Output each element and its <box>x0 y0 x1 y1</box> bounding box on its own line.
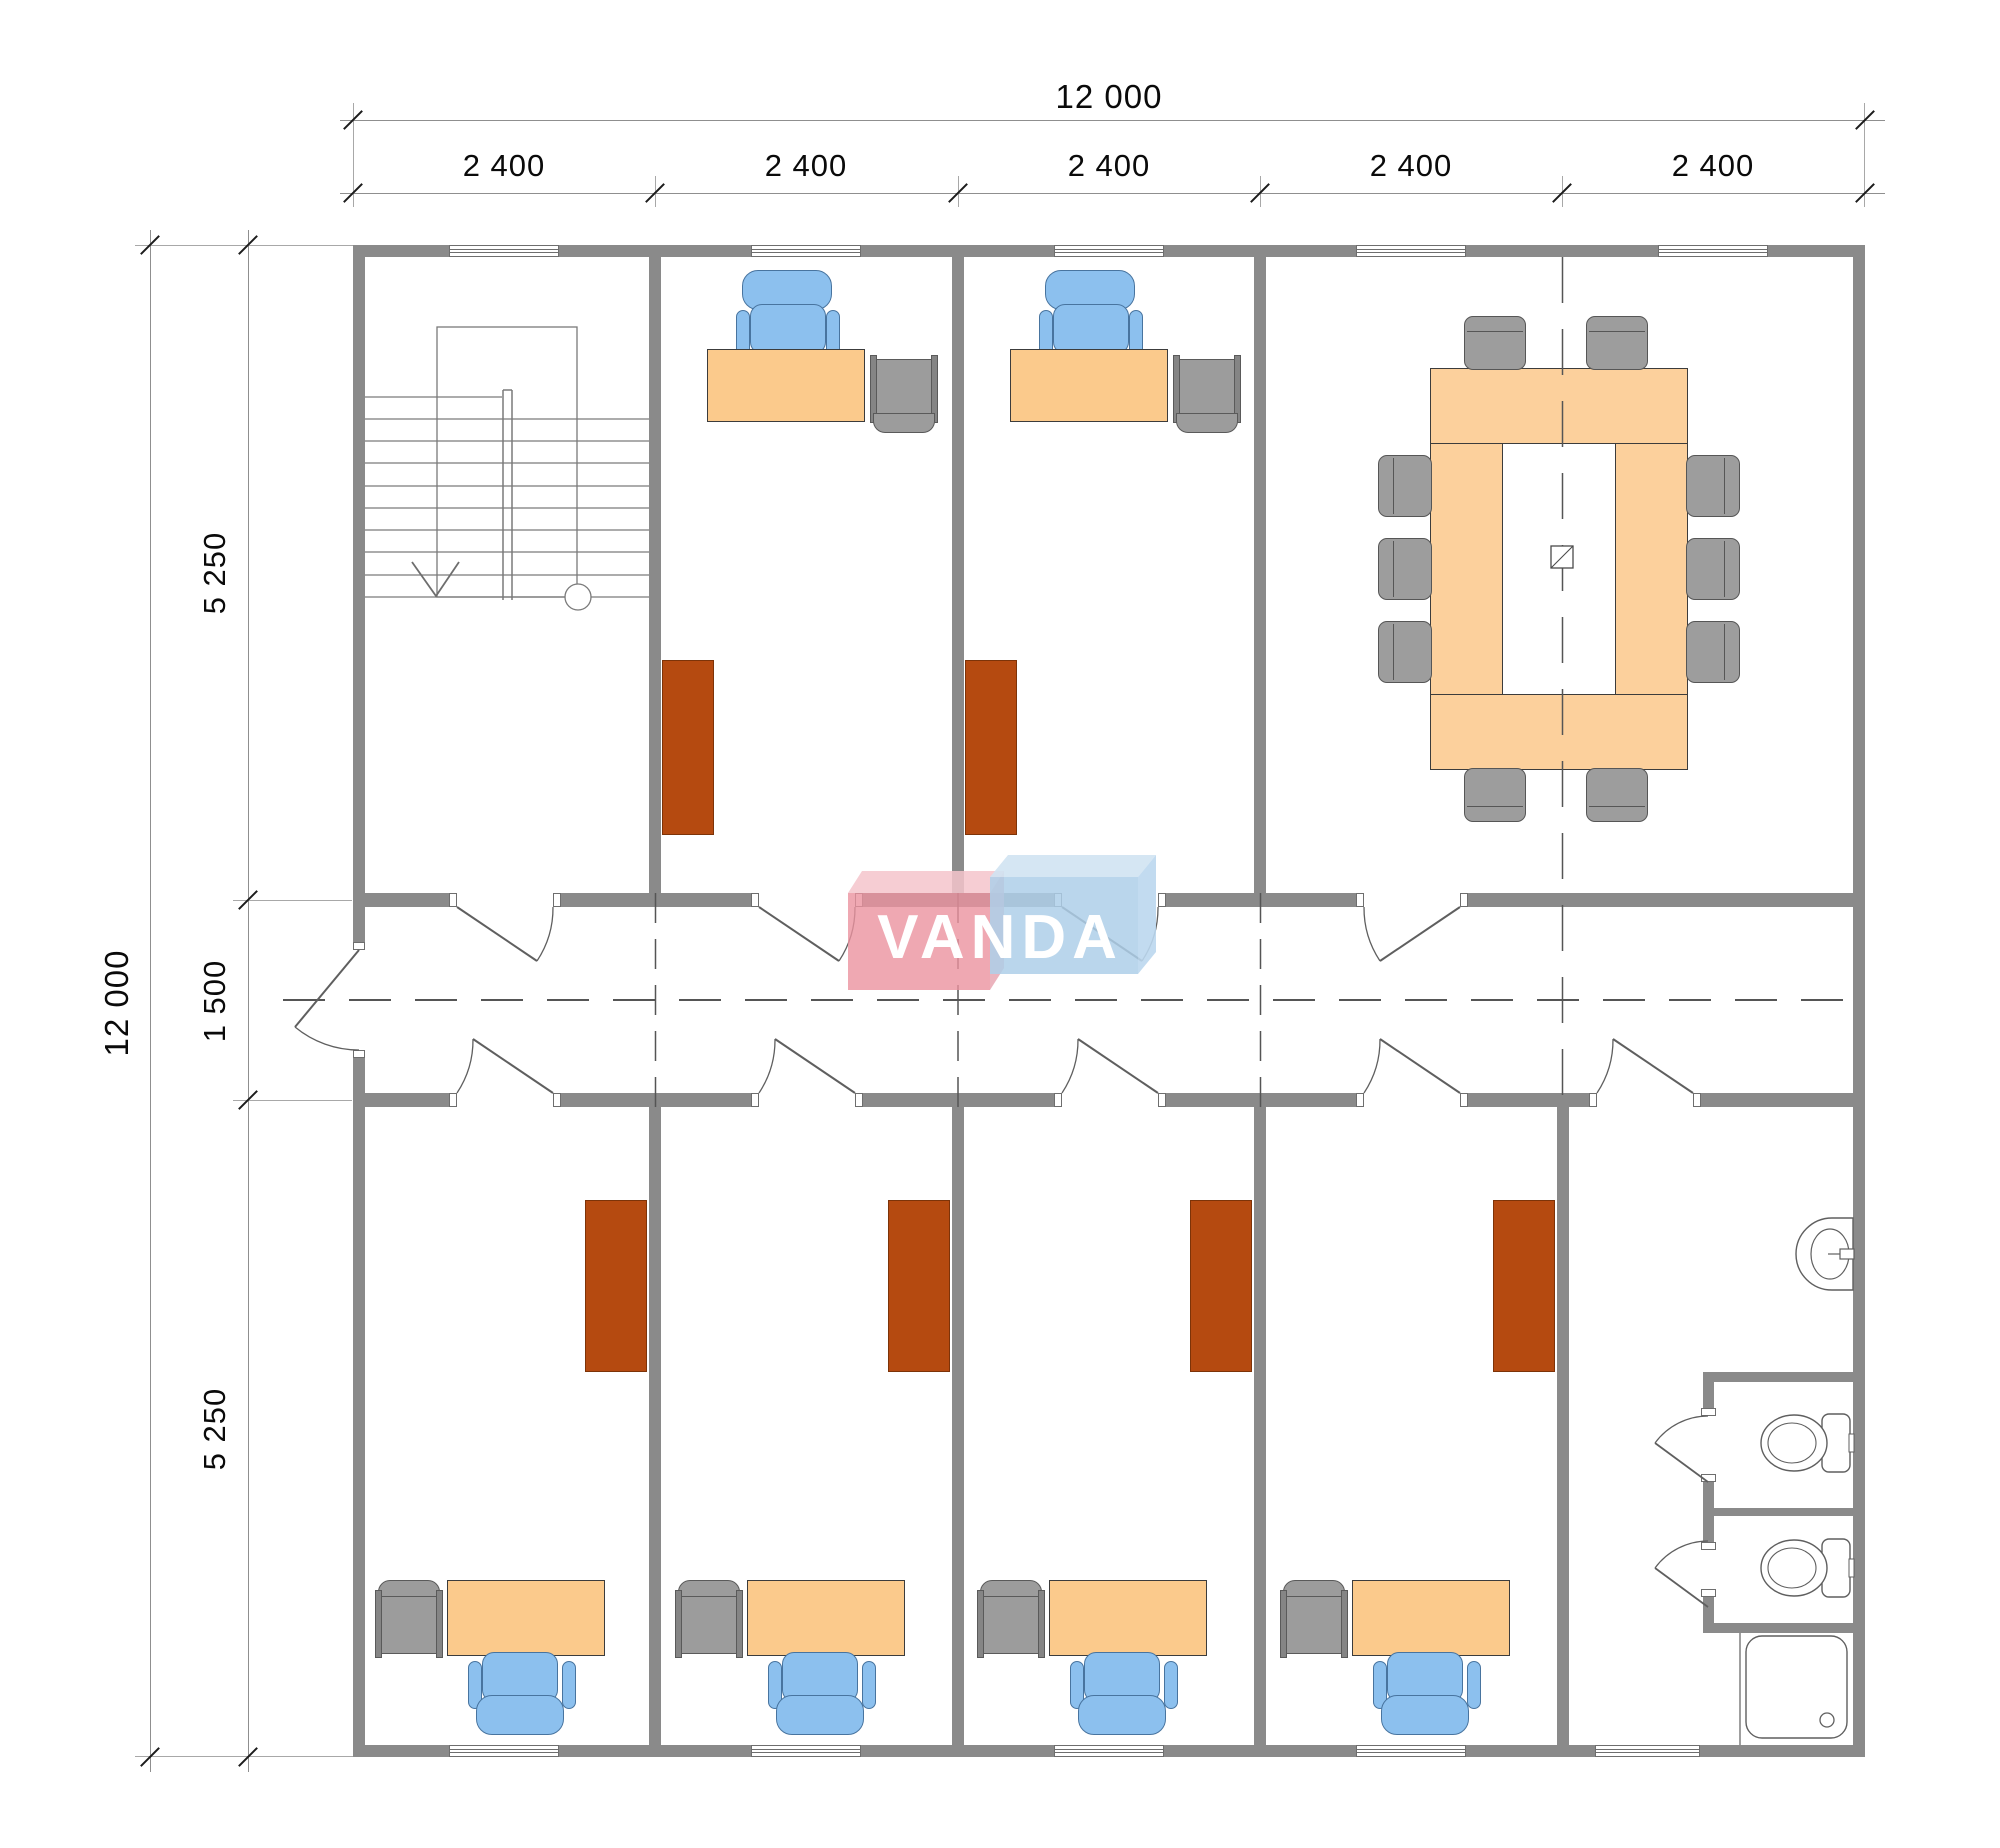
corridor-wall <box>855 1093 1062 1107</box>
extension-line <box>233 1100 352 1101</box>
extension-line <box>233 900 352 901</box>
window <box>449 245 559 257</box>
meeting-chair <box>1378 538 1432 600</box>
meeting-chair <box>1464 316 1526 370</box>
dim-label-bay: 2 400 <box>1049 148 1169 184</box>
partition-wall <box>1254 257 1266 893</box>
extension-line <box>135 1756 353 1757</box>
meeting-chair <box>1686 538 1740 600</box>
logo-text: VANDA <box>877 903 1123 972</box>
partition-wall <box>649 1107 661 1745</box>
dim-label-bay: 2 400 <box>746 148 866 184</box>
floor-plan: 12 000 2 400 2 400 2 400 2 400 2 400 12 … <box>0 0 2000 1848</box>
stall-post <box>1703 1382 1714 1408</box>
office-chair-backrest <box>776 1695 864 1735</box>
office-desk <box>447 1580 605 1656</box>
door-jamb <box>1701 1408 1716 1416</box>
door-jamb <box>1701 1589 1716 1597</box>
stair-divider <box>503 390 512 600</box>
stall-post <box>1703 1482 1714 1508</box>
office-chair-backrest <box>476 1695 564 1735</box>
dim-line-top-overall <box>340 120 1885 121</box>
office-chair-armrest <box>1164 1661 1178 1709</box>
door-jamb <box>449 1093 457 1107</box>
door-jamb <box>1701 1542 1716 1550</box>
corridor-wall <box>353 1093 457 1107</box>
toilet <box>1761 1414 1854 1472</box>
corridor-wall <box>353 893 457 907</box>
partition-wall <box>649 257 661 893</box>
office-desk <box>747 1580 905 1656</box>
door-jamb <box>353 1050 365 1058</box>
dim-line-left-overall <box>150 230 151 1772</box>
printer <box>675 1578 743 1658</box>
meeting-chair <box>1586 768 1648 822</box>
partition-wall <box>952 257 964 893</box>
door-jamb <box>1054 1093 1062 1107</box>
printer <box>977 1578 1045 1658</box>
dim-label-overall-width: 12 000 <box>959 78 1259 116</box>
dim-label-row: 5 250 <box>197 423 233 723</box>
office-desk <box>1010 349 1168 422</box>
corridor-wall <box>1460 1093 1597 1107</box>
stall-post <box>1703 1516 1714 1542</box>
stall-post <box>1703 1597 1714 1623</box>
dim-line-top-segments <box>340 193 1885 194</box>
meeting-chair <box>1586 316 1648 370</box>
office-chair-seat <box>1053 304 1129 354</box>
door-jamb <box>1693 1093 1701 1107</box>
corridor-wall <box>553 893 759 907</box>
door-jamb <box>1356 893 1364 907</box>
window <box>1356 245 1466 257</box>
window <box>1658 245 1768 257</box>
vanda-logo: VANDA <box>830 840 1190 1020</box>
door-jamb <box>1589 1093 1597 1107</box>
partition-wall <box>1557 1107 1569 1745</box>
stall-wall <box>1703 1508 1853 1516</box>
door-jamb <box>553 1093 561 1107</box>
cabinet <box>1493 1200 1555 1372</box>
dim-line-left-segments <box>248 230 249 1772</box>
meeting-chair <box>1378 621 1432 683</box>
corridor-wall <box>1693 1093 1865 1107</box>
dim-label-bay: 2 400 <box>1653 148 1773 184</box>
door-jamb <box>751 1093 759 1107</box>
door-jamb <box>751 893 759 907</box>
toilet <box>1761 1539 1854 1597</box>
stair-treads <box>365 397 649 597</box>
office-chair-seat <box>750 304 826 354</box>
exterior-wall-left <box>353 245 365 950</box>
office-chair-backrest <box>1078 1695 1166 1735</box>
dim-label-bay: 2 400 <box>1351 148 1471 184</box>
exterior-wall-left <box>353 1050 365 1757</box>
cabinet <box>585 1200 647 1372</box>
door-jamb <box>1356 1093 1364 1107</box>
dim-label-bay: 2 400 <box>444 148 564 184</box>
office-chair-armrest <box>562 1661 576 1709</box>
window <box>449 1745 559 1757</box>
meeting-chair <box>1686 621 1740 683</box>
printer <box>870 355 938 435</box>
window <box>1054 1745 1164 1757</box>
office-chair-backrest <box>1381 1695 1469 1735</box>
door-jamb <box>1701 1474 1716 1482</box>
printer <box>375 1578 443 1658</box>
dim-label-row: 1 500 <box>197 851 233 1151</box>
door-jamb <box>449 893 457 907</box>
meeting-chair <box>1378 455 1432 517</box>
window <box>751 245 861 257</box>
door-jamb <box>1460 1093 1468 1107</box>
cabinet <box>1190 1200 1252 1372</box>
partition-wall <box>952 1107 964 1745</box>
corridor-wall <box>1158 1093 1364 1107</box>
wash-basin <box>1796 1218 1854 1290</box>
window <box>751 1745 861 1757</box>
door-jamb <box>353 942 365 950</box>
office-chair-armrest <box>862 1661 876 1709</box>
office-desk <box>1049 1580 1207 1656</box>
office-chair-armrest <box>1467 1661 1481 1709</box>
exterior-wall-right <box>1853 245 1865 1757</box>
stair-symbol-circle <box>565 584 591 610</box>
printer <box>1280 1578 1348 1658</box>
meeting-table-well <box>1502 443 1616 695</box>
cabinet <box>662 660 714 835</box>
cabinet <box>888 1200 950 1372</box>
stall-wall <box>1703 1623 1853 1633</box>
window <box>1595 1745 1700 1757</box>
stair-direction-arrow <box>412 562 459 596</box>
partition-wall <box>1254 1107 1266 1745</box>
dim-label-row: 5 250 <box>197 1279 233 1579</box>
meeting-chair <box>1686 455 1740 517</box>
corridor-wall <box>1460 893 1865 907</box>
cabinet <box>965 660 1017 835</box>
printer <box>1173 355 1241 435</box>
dim-label-overall-height: 12 000 <box>98 853 136 1153</box>
office-desk <box>707 349 865 422</box>
window <box>1356 1745 1466 1757</box>
shower-tray <box>1740 1633 1847 1745</box>
door-jamb <box>553 893 561 907</box>
door-jamb <box>1460 893 1468 907</box>
stair-landing-outline <box>437 327 577 597</box>
corridor-wall <box>553 1093 759 1107</box>
office-desk <box>1352 1580 1510 1656</box>
meeting-chair <box>1464 768 1526 822</box>
window <box>1054 245 1164 257</box>
door-jamb <box>855 1093 863 1107</box>
door-jamb <box>1158 1093 1166 1107</box>
logo-blue-top-face <box>990 855 1156 877</box>
logo-pink-top-face <box>848 871 1004 893</box>
stall-wall <box>1703 1372 1853 1382</box>
